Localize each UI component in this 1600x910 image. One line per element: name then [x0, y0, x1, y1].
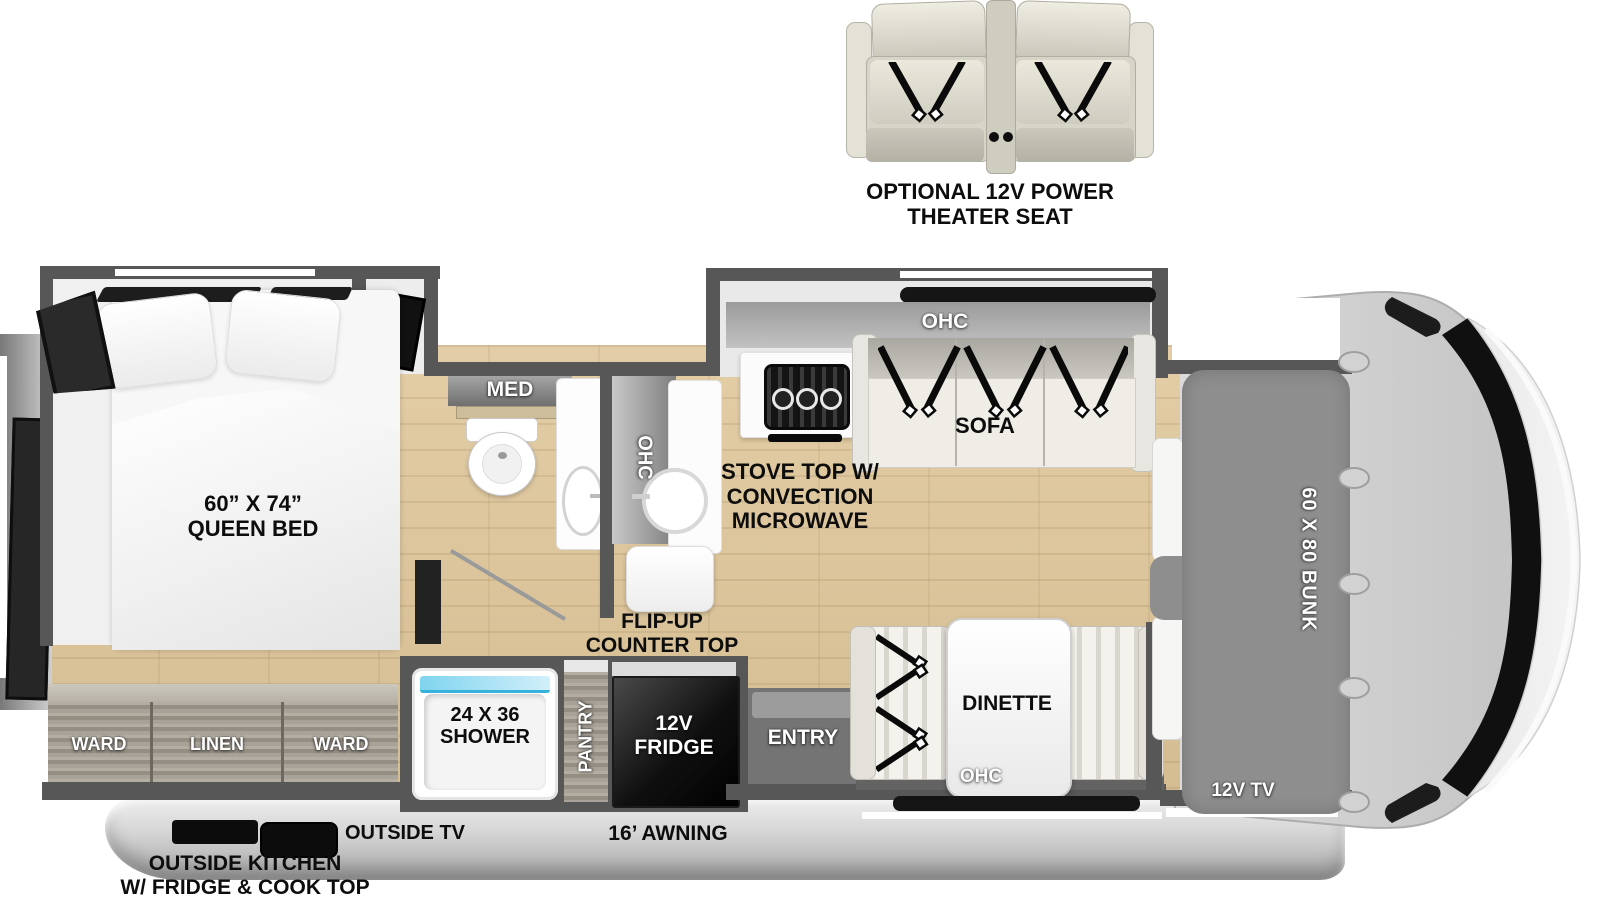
fridge-top-face: [612, 662, 736, 676]
cab-seat-back: [1152, 616, 1184, 740]
cupholder-icon: [1003, 132, 1013, 142]
shower-glass: [420, 676, 550, 693]
sofa-ohc-label: OHC: [905, 310, 985, 334]
rear-window-trim: [0, 356, 7, 678]
bath-kitchen-top-wall: [424, 362, 716, 376]
flip-up-counter-label: FLIP-UPCOUNTER TOP: [584, 610, 740, 657]
bottom-wall-left: [42, 782, 402, 800]
awning-label: 16’ AWNING: [593, 822, 743, 846]
bath-wall-block: [415, 560, 441, 644]
ward-right-label: WARD: [284, 734, 398, 755]
theater-seat-footrest: [866, 128, 984, 162]
outside-tv-label: OUTSIDE TV: [330, 822, 480, 844]
entry-step: [752, 692, 854, 718]
pantry-top-face: [564, 660, 608, 672]
stove-burner: [772, 388, 794, 410]
pillow: [224, 288, 342, 383]
theater-seat-label: OPTIONAL 12V POWER THEATER SEAT: [830, 180, 1150, 229]
slideout-window-strip: [115, 269, 315, 276]
cupholder-icon: [989, 132, 999, 142]
exterior-trim-strip: [862, 812, 1162, 819]
bunk-overhang: [1182, 370, 1350, 814]
cab-seat-back: [1152, 438, 1184, 562]
bath-sink-icon: [562, 466, 604, 536]
exterior-gap: [1172, 298, 1340, 360]
stove-burner: [820, 388, 842, 410]
linen-label: LINEN: [153, 734, 281, 755]
ward-cabinet-top: [48, 684, 398, 704]
kitchen-ohc-label: OHC: [633, 413, 656, 503]
stove-knob-bar: [768, 434, 842, 442]
tv-bar-icon: [900, 287, 1157, 303]
dinette-bench-back: [850, 626, 876, 780]
dinette-ohc-label: OHC: [948, 766, 1014, 788]
outside-kitchen-door: [172, 820, 258, 844]
theater-seat-footrest: [1016, 128, 1134, 162]
dinette-window-icon: [893, 796, 1140, 811]
entry-label: ENTRY: [748, 726, 858, 750]
pillow: [95, 291, 219, 390]
ward-left-label: WARD: [48, 734, 150, 755]
stove-label: STOVE TOP W/CONVECTIONMICROWAVE: [702, 460, 898, 534]
toilet-bowl-inner: [482, 444, 522, 484]
flip-up-counter: [626, 546, 714, 612]
bed-nook-wall-top: [352, 266, 438, 279]
sofa-slideout-wall-left: [706, 268, 720, 376]
shower-label: 24 X 36SHOWER: [414, 704, 556, 749]
med-label: MED: [448, 378, 572, 402]
seatbelt-icon: [876, 634, 936, 776]
dinette-label: DINETTE: [948, 692, 1066, 716]
hinge-pins-icon: [1330, 340, 1382, 820]
queen-bed-label: 60” X 74”QUEEN BED: [128, 492, 378, 541]
cab-tv-label: 12V TV: [1188, 780, 1298, 802]
slideout-window-strip: [900, 271, 1152, 278]
seatbelt-icon: [860, 62, 1140, 132]
stove-burner: [796, 388, 818, 410]
pantry-label: PANTRY: [576, 682, 597, 792]
outside-kitchen-label: OUTSIDE KITCHENW/ FRIDGE & COOK TOP: [90, 852, 400, 899]
sofa-label: SOFA: [935, 414, 1035, 439]
seatbelt-icon: [878, 344, 1128, 456]
fridge-label: 12VFRIDGE: [612, 712, 736, 760]
rv-floorplan-diagram: OPTIONAL 12V POWER THEATER SEAT: [0, 0, 1600, 910]
toilet-flush-dot: [498, 452, 507, 459]
bunk-label: 60 X 80 BUNK: [1297, 475, 1320, 645]
